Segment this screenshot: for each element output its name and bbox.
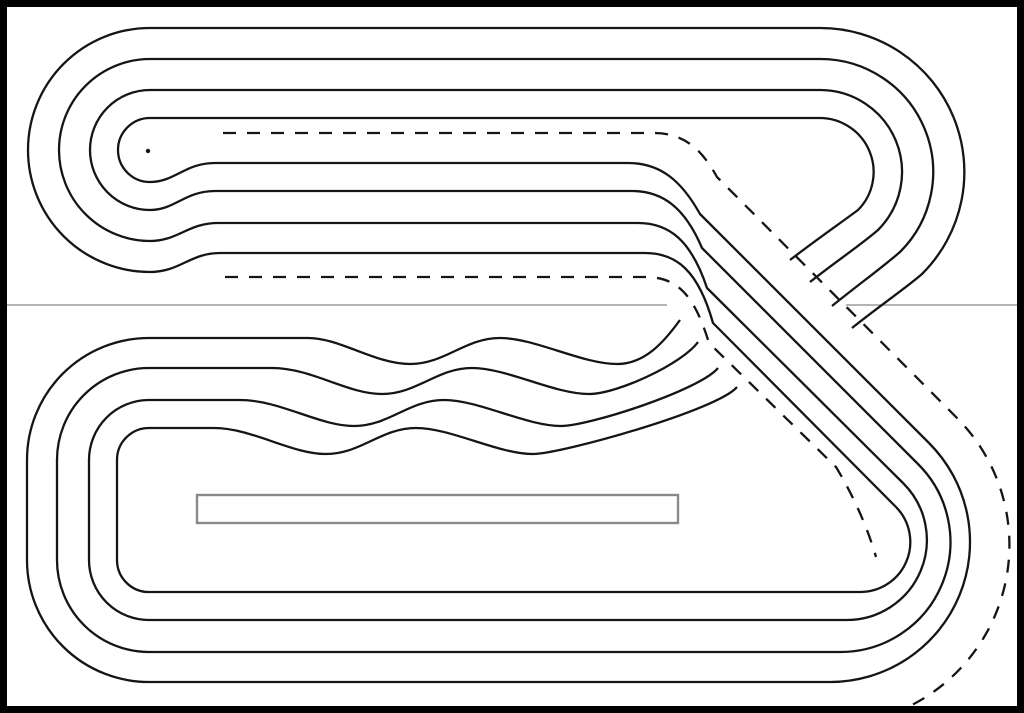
turn-center-dot [146, 149, 150, 153]
track-lane-2 [57, 90, 950, 652]
dashed-guide-lower [225, 277, 876, 557]
track-lane-3 [59, 59, 933, 620]
track-template-page [0, 0, 1024, 713]
start-finish-box [197, 495, 678, 523]
page-border-frame [4, 4, 1021, 710]
track-lane-4 [28, 28, 964, 592]
dashed-guide-upper [223, 133, 1009, 713]
track-drawing [0, 0, 1024, 713]
